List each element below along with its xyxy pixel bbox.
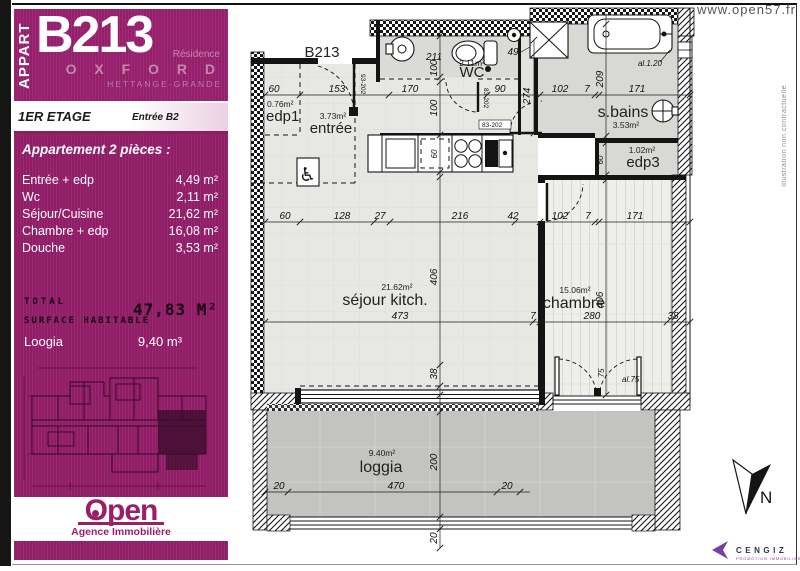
room-label: Séjour/Cuisine [22, 206, 103, 223]
sejour-label: séjour kitch. [342, 292, 427, 309]
dim: 7 [585, 211, 591, 222]
dim: 60 [268, 84, 280, 95]
dim: 20 [500, 481, 513, 492]
loggia-railing [267, 517, 655, 529]
dim: 90 [494, 84, 506, 95]
residence-name: O X F O R D [66, 61, 222, 77]
sbains-area: 3.53m² [613, 120, 640, 130]
dim: 42 [507, 211, 519, 222]
residence-city: HETTANGE-GRANDE [107, 79, 222, 89]
dim: 209 [595, 70, 606, 88]
dim: 102 [552, 84, 569, 95]
room-fills [265, 14, 678, 517]
cengiz-icon [712, 541, 728, 559]
dim: 7 [530, 311, 536, 322]
room-area: 4,49 m² [176, 172, 218, 189]
sidebar-panel: Appartement 2 pièces : Entrée + edp 4,49… [14, 134, 228, 497]
cengiz-name: CENGIZ [736, 546, 787, 555]
wheelchair-symbol: ♿ [297, 158, 319, 186]
door-allege-note: al.75 [622, 375, 640, 384]
edp3-label: edp3 [626, 154, 659, 171]
dim-wc-width: 211 [425, 52, 442, 63]
sidebar-header: APPART B213 Résidence O X F O R D HETTAN… [14, 9, 228, 101]
bath-allege-note: al.1.20 [638, 59, 663, 68]
loggia-row: Loogia 9,40 m³ [24, 334, 182, 349]
cengiz-subtitle: PROMOTION IMMOBILIERE [736, 556, 800, 561]
highlighted-unit [158, 410, 206, 454]
website-url: www.open57.fr [697, 2, 796, 17]
dim: 75 [597, 368, 606, 377]
dim: 60 [430, 149, 439, 158]
list-item: Wc 2,11 m² [22, 189, 218, 206]
dim: 38 [667, 311, 679, 322]
dim: 153 [329, 84, 346, 95]
scan-edge [0, 0, 11, 566]
agency-logo: Open [85, 497, 158, 525]
chambre-area: 15.06m² [559, 285, 590, 295]
edp1-label: edp1 [266, 108, 299, 125]
promoter-logo: CENGIZ PROMOTION IMMOBILIERE [712, 541, 800, 561]
plan-unit-label: B213 [304, 44, 339, 61]
floorplan-sheet: { "sidebar": { "appart_label": "APPART",… [0, 0, 800, 566]
appart-label: APPART [16, 17, 36, 95]
small-basin [508, 29, 521, 42]
dim: 102 [552, 211, 569, 222]
floor-plan-drawing: 93-202 83-202 83-202 [230, 0, 800, 566]
sidebar-bottom-strip [14, 541, 228, 560]
dim: 60 [596, 155, 605, 164]
floor-band: 1ER ETAGE Entrée B2 [14, 103, 228, 134]
apartment-type: Appartement 2 pièces : [22, 142, 171, 157]
top-wall [370, 20, 530, 36]
list-item: Séjour/Cuisine 21,62 m² [22, 206, 218, 223]
room-label: Wc [22, 189, 40, 206]
svg-text:♿: ♿ [299, 165, 316, 186]
chambre-label: chambre [543, 295, 605, 312]
dim: 171 [627, 211, 644, 222]
room-area: 16,08 m² [169, 223, 218, 240]
surface-habitable-label: SURFACE HABITABLE [24, 316, 150, 326]
mini-plan [18, 362, 222, 494]
left-wall [251, 52, 264, 395]
info-sidebar: APPART B213 Résidence O X F O R D HETTAN… [14, 7, 228, 560]
dim: 60 [279, 211, 291, 222]
sbains-label: s.bains [598, 104, 649, 121]
agency-footer: Open Agence Immobilière [14, 497, 228, 539]
total-label: TOTAL [24, 297, 66, 307]
residence-label: Résidence [173, 49, 220, 60]
list-item: Chambre + edp 16,08 m² [22, 223, 218, 240]
dim: 171 [629, 84, 646, 95]
total-surface-value: 47,83 M² [133, 300, 218, 319]
loggia-label: loggia [360, 459, 403, 476]
loggia-value: 9,40 m³ [138, 334, 182, 349]
dim: 280 [583, 311, 601, 322]
dim: 100 [429, 99, 440, 116]
dim-corridor: 274 [522, 87, 533, 105]
room-area: 21,62 m² [169, 206, 218, 223]
floor-label: 1ER ETAGE [18, 109, 91, 124]
dim: 20 [272, 481, 285, 492]
room-label: Chambre + edp [22, 223, 109, 240]
list-item: Douche 3,53 m² [22, 240, 218, 257]
illustration-note: illustration non contractuelle [781, 85, 788, 187]
dim: 38 [429, 368, 440, 380]
door-ref: 93-202 [359, 74, 366, 95]
dim: 200 [429, 453, 440, 471]
door-ref: 83-202 [482, 122, 503, 129]
dim: 27 [373, 211, 386, 222]
loggia-label: Loogia [24, 334, 63, 349]
dim: 20 [429, 532, 440, 545]
agency-tagline: Agence Immobilière [14, 526, 228, 538]
entree-label: entrée [310, 120, 353, 137]
dim: 216 [451, 211, 469, 222]
north-arrow: N [733, 460, 772, 514]
wc-label: WC [460, 64, 485, 81]
loggia-area: 9.40m² [369, 448, 396, 458]
logo-dot-icon [92, 510, 99, 517]
entrance-label: Entrée B2 [132, 112, 179, 123]
shower [530, 22, 568, 58]
total-surface-block: TOTAL SURFACE HABITABLE 47,83 M² [24, 289, 218, 327]
dim-shower: 49 [507, 47, 519, 58]
sejour-area: 21.62m² [381, 282, 412, 292]
door-ref: 83-202 [482, 88, 489, 109]
list-item: Entrée + edp 4,49 m² [22, 172, 218, 189]
unit-number: B213 [36, 5, 152, 65]
room-area-list: Entrée + edp 4,49 m² Wc 2,11 m² Séjour/C… [22, 172, 218, 257]
dim: 473 [392, 311, 409, 322]
room-area: 3,53 m² [176, 240, 218, 257]
dim: 170 [402, 84, 419, 95]
room-area: 2,11 m² [177, 189, 218, 206]
dim: 7 [584, 84, 590, 95]
sejour-bay-window [300, 390, 540, 403]
room-label: Entrée + edp [22, 172, 94, 189]
dim: 470 [388, 481, 405, 492]
north-label: N [760, 488, 772, 507]
dim: 128 [334, 211, 351, 222]
bathtub [588, 15, 672, 53]
kitchen-counter [368, 135, 513, 172]
dim: 406 [429, 268, 440, 285]
floor-plan: www.open57.fr illustration non contractu… [230, 0, 800, 566]
room-loggia-floor [267, 411, 655, 517]
room-label: Douche [22, 240, 65, 257]
